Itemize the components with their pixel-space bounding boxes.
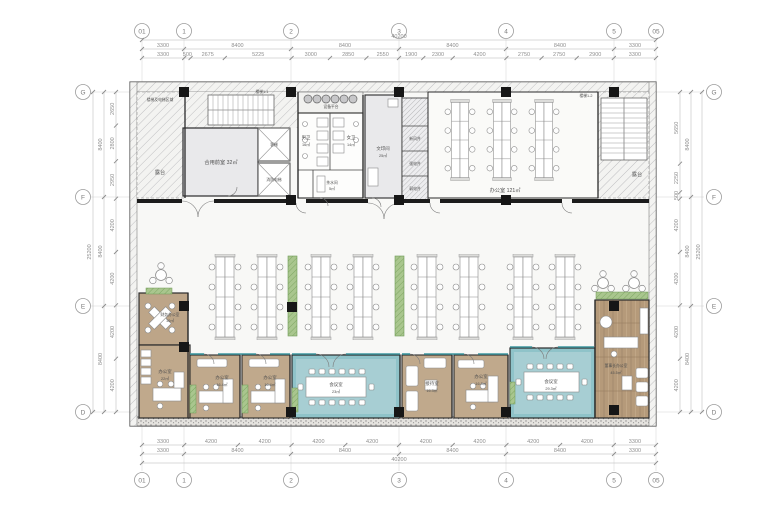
- dimension-value: 4200: [312, 439, 324, 445]
- label-stair2: 楼梯1-2: [579, 93, 592, 98]
- label-equip: 设备平台: [323, 104, 338, 109]
- stair-1-2: [601, 98, 647, 160]
- label-elevator1: 客梯: [270, 142, 278, 147]
- dimension-value: 4200: [110, 273, 116, 285]
- grid-bubble-label: 5: [612, 477, 616, 484]
- label-shaft-elv: 弱电井: [409, 186, 421, 191]
- dimension-value: 4200: [473, 439, 485, 445]
- grid-bubble-label: 3: [397, 477, 401, 484]
- grid-bubble-label: 01: [138, 28, 146, 35]
- grid-bubble-label: 1: [182, 28, 186, 35]
- label-pantry-area: 5㎡: [329, 186, 335, 191]
- dimension-value: 5225: [252, 52, 264, 58]
- label-shaft-fresh: 新风井: [409, 136, 421, 141]
- planter-strip: [395, 256, 404, 336]
- structural-column: [609, 87, 619, 97]
- dimension-value: 3300: [157, 43, 169, 49]
- grid-bubble-label: 4: [504, 477, 508, 484]
- dimension-value: 3000: [305, 52, 317, 58]
- dimension-value: 8400: [685, 353, 691, 365]
- dimension-value: 8400: [446, 43, 458, 49]
- label-womens: 女卫: [347, 134, 356, 141]
- dimension-value: 4200: [110, 326, 116, 338]
- label-finance-area: 10㎡: [166, 318, 174, 323]
- room-office163: [454, 355, 508, 418]
- dimension-value: 40200: [391, 457, 406, 463]
- stair-1-1: [208, 95, 274, 125]
- dimension-value: 4200: [110, 219, 116, 231]
- label-chairman: 董事长办公室: [605, 363, 628, 368]
- dimension-value: 5650: [674, 122, 680, 134]
- label-pantry: 茶水间: [326, 180, 338, 185]
- dimension-value: 8400: [231, 448, 243, 454]
- grid-bubble-label: D: [81, 409, 86, 416]
- top-wall-band: [130, 82, 656, 92]
- dimension-value: 40200: [391, 34, 406, 40]
- dimension-value: 8400: [685, 138, 691, 150]
- label-office163: 办公室: [474, 373, 488, 380]
- dimension-value: 8400: [98, 245, 104, 257]
- structural-column: [286, 87, 296, 97]
- dimension-value: 25200: [696, 244, 702, 259]
- dimension-value: 3300: [157, 439, 169, 445]
- grid-bubble-label: 01: [138, 477, 146, 484]
- grid-bubble-label: 1: [182, 477, 186, 484]
- label-meeting1-area: 23㎡: [332, 389, 340, 394]
- dimension-value: 500: [674, 191, 680, 200]
- dimension-value: 2300: [432, 52, 444, 58]
- label-shaft-power: 强电井: [409, 161, 421, 166]
- label-office22-area: 22㎡: [161, 376, 169, 381]
- dimension-value: 4200: [473, 52, 485, 58]
- dimension-value: 3300: [629, 448, 641, 454]
- room-office22: [139, 345, 190, 418]
- dimension-value: 2950: [110, 174, 116, 186]
- structural-column: [179, 87, 189, 97]
- structural-column: [286, 195, 296, 205]
- label-womens-area: 14㎡: [347, 142, 355, 147]
- label-corner-note: 楼梯及电梯区域: [147, 97, 174, 102]
- dimension-value: 4200: [674, 326, 680, 338]
- dimension-value: 3300: [157, 448, 169, 454]
- room-chairman: [595, 292, 649, 418]
- dimension-value: 1900: [405, 52, 417, 58]
- label-office164a: 办公室: [215, 374, 229, 381]
- structural-column: [394, 195, 404, 205]
- dimension-value: 8400: [339, 43, 351, 49]
- grid-bubble-label: 05: [652, 28, 660, 35]
- dimension-value: 2675: [202, 52, 214, 58]
- dimension-value: 4200: [420, 439, 432, 445]
- grid-bubble-label: F: [81, 194, 85, 201]
- label-meeting2-area: 29.3㎡: [545, 386, 556, 391]
- dimension-value: 2750: [518, 52, 530, 58]
- dimension-value: 8400: [685, 245, 691, 257]
- label-stair1: 楼梯1-1: [255, 89, 268, 94]
- grid-bubble-label: 05: [652, 477, 660, 484]
- dimension-value: 3300: [629, 52, 641, 58]
- structural-column: [501, 87, 511, 97]
- grid-bubble-label: 5: [612, 28, 616, 35]
- label-office-top: 办公室 121㎡: [490, 186, 522, 194]
- dimension-value: 8400: [554, 448, 566, 454]
- dimension-value: 4200: [527, 439, 539, 445]
- dimension-value: 3300: [157, 52, 169, 58]
- label-finance: 财务办公室: [161, 312, 180, 317]
- dimension-value: 8400: [446, 448, 458, 454]
- dimension-value: 2850: [342, 52, 354, 58]
- label-print: 文印间: [376, 145, 389, 152]
- dimension-value: 2650: [110, 103, 116, 115]
- dimension-value: 4200: [366, 439, 378, 445]
- floor-plan-drawing: 露台 楼梯及电梯区域 楼梯1-1 合用前室 32㎡ 客梯 消防电梯 设备平台 男…: [0, 0, 780, 520]
- dimension-value: 2800: [110, 137, 116, 149]
- dimension-value: 4200: [674, 273, 680, 285]
- room-meeting1: [292, 355, 400, 418]
- label-meeting1: 会议室: [329, 381, 343, 388]
- dimension-value: 3300: [629, 43, 641, 49]
- room-reception: [402, 355, 452, 418]
- label-terrace-right: 露台: [632, 170, 642, 178]
- label-reception: 接待室: [425, 380, 439, 387]
- dimension-value: 4200: [674, 219, 680, 231]
- cabinet: [388, 99, 398, 107]
- structural-column: [179, 342, 189, 352]
- label-office163-area: 16.3㎡: [475, 381, 486, 386]
- dimension-value: 4200: [674, 379, 680, 391]
- label-reception-area: 16.3㎡: [426, 388, 437, 393]
- room-toilets: [298, 113, 363, 198]
- planter-strip: [288, 256, 297, 336]
- grid-bubble-label: D: [712, 409, 717, 416]
- dimension-value: 8400: [339, 448, 351, 454]
- grid-bubble-label: F: [712, 194, 716, 201]
- grid-bubble-label: G: [711, 89, 716, 96]
- left-wall-band: [130, 82, 137, 426]
- grid-bubble-label: 2: [289, 477, 293, 484]
- right-wall-band: [649, 82, 656, 426]
- room-office164a: [190, 355, 240, 418]
- dimension-value: 8400: [231, 43, 243, 49]
- dimension-value: 500: [183, 52, 192, 58]
- dimension-value: 8400: [554, 43, 566, 49]
- structural-column: [394, 87, 404, 97]
- structural-column: [501, 195, 511, 205]
- dimension-value: 4200: [110, 379, 116, 391]
- dimension-value: 2900: [589, 52, 601, 58]
- label-terrace-left: 露台: [155, 168, 165, 176]
- desk-clusters-top: [445, 100, 559, 181]
- equipment-platform: [298, 92, 363, 113]
- dimension-value: 4200: [205, 439, 217, 445]
- structural-column: [286, 407, 296, 417]
- label-chairman-area: 45.5㎡: [610, 370, 621, 375]
- dimension-value: 2550: [377, 52, 389, 58]
- label-mens-area: 16㎡: [302, 142, 310, 147]
- floor-plan-canvas: 露台 楼梯及电梯区域 楼梯1-1 合用前室 32㎡ 客梯 消防电梯 设备平台 男…: [0, 0, 780, 520]
- label-office164b: 办公室: [263, 374, 277, 381]
- label-office164b-area: 16.4㎡: [264, 382, 275, 387]
- dimension-value: 25200: [87, 244, 93, 259]
- copier: [368, 168, 378, 186]
- dimension-value: 4200: [259, 439, 271, 445]
- terrace-left: [137, 92, 185, 198]
- structural-column: [609, 405, 619, 415]
- label-print-area: 25㎡: [379, 153, 387, 158]
- dimension-value: 3300: [629, 439, 641, 445]
- dimension-value: 4200: [581, 439, 593, 445]
- label-elevator2: 消防电梯: [266, 177, 281, 182]
- dimension-value: 8400: [98, 353, 104, 365]
- grid-bubble-label: 2: [289, 28, 293, 35]
- dimension-value: 2750: [553, 52, 565, 58]
- structural-column: [501, 407, 511, 417]
- structural-column: [609, 301, 619, 311]
- label-shared-lobby: 合用前室 32㎡: [204, 158, 238, 166]
- dimension-value: 2250: [674, 172, 680, 184]
- label-office22: 办公室: [158, 368, 172, 375]
- grid-bubble-label: E: [81, 303, 86, 310]
- grid-bubble-label: G: [80, 89, 85, 96]
- structural-column: [394, 407, 404, 417]
- label-meeting2: 会议室: [544, 378, 558, 385]
- grid-bubble-label: E: [712, 303, 717, 310]
- structural-column: [287, 302, 297, 312]
- dimension-value: 8400: [98, 138, 104, 150]
- label-office164a-area: 16.4㎡: [216, 382, 227, 387]
- structural-column: [179, 301, 189, 311]
- grid-bubble-label: 4: [504, 28, 508, 35]
